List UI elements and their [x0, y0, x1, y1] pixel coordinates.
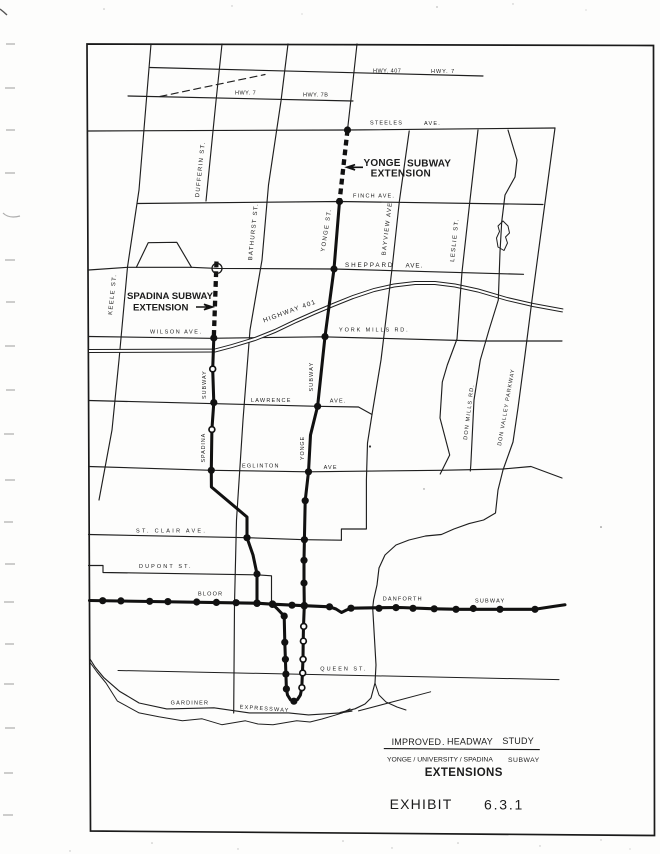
svg-text:.: . — [442, 737, 445, 747]
svg-text:SUBWAY: SUBWAY — [309, 362, 315, 392]
svg-text:EXTENSION: EXTENSION — [371, 169, 432, 180]
svg-text:YONGE: YONGE — [364, 158, 401, 169]
svg-text:HWY. 407: HWY. 407 — [373, 69, 401, 75]
svg-text:HEADWAY: HEADWAY — [447, 737, 493, 747]
svg-text:AVE: AVE — [324, 465, 338, 471]
svg-text:SPADINA SUBWAY: SPADINA SUBWAY — [127, 291, 214, 302]
svg-text:YONGE: YONGE — [300, 436, 306, 460]
svg-text:STUDY: STUDY — [502, 736, 534, 746]
svg-text:SPADINA: SPADINA — [201, 433, 207, 463]
svg-text:QUEEN ST.: QUEEN ST. — [320, 666, 367, 672]
svg-text:EGLINTON: EGLINTON — [242, 463, 280, 469]
svg-text:WILSON AVE.: WILSON AVE. — [150, 330, 203, 336]
svg-text:SUBWAY: SUBWAY — [202, 370, 208, 399]
svg-text:DUPONT ST.: DUPONT ST. — [139, 564, 193, 570]
svg-text:LAWRENCE: LAWRENCE — [251, 398, 292, 404]
svg-text:HWY. 7: HWY. 7 — [235, 90, 256, 96]
svg-text:YONGE / UNIVERSITY / SPADINA: YONGE / UNIVERSITY / SPADINA — [387, 756, 493, 763]
svg-text:IMPROVED: IMPROVED — [392, 737, 442, 747]
svg-text:AVE.: AVE. — [330, 398, 347, 404]
svg-text:AVE.: AVE. — [406, 263, 424, 270]
svg-text:HWY. 7B: HWY. 7B — [303, 92, 328, 98]
svg-text:SUBWAY: SUBWAY — [475, 599, 505, 605]
svg-text:AVE.: AVE. — [424, 121, 441, 127]
svg-text:6.3.1: 6.3.1 — [484, 796, 524, 812]
svg-text:DANFORTH: DANFORTH — [383, 596, 423, 602]
svg-text:SUBWAY: SUBWAY — [508, 757, 540, 764]
svg-text:STEELES: STEELES — [370, 121, 403, 127]
svg-text:GARDINER: GARDINER — [171, 700, 210, 706]
svg-text:SHEPPARD: SHEPPARD — [345, 262, 394, 269]
svg-text:ST. CLAIR AVE.: ST. CLAIR AVE. — [136, 529, 207, 535]
svg-text:BLOOR: BLOOR — [198, 591, 223, 597]
svg-text:YORK MILLS RD.: YORK MILLS RD. — [339, 328, 410, 334]
svg-text:EXTENSION: EXTENSION — [133, 303, 189, 314]
svg-text:EXHIBIT: EXHIBIT — [390, 796, 453, 812]
svg-text:EXTENSIONS: EXTENSIONS — [425, 767, 503, 779]
svg-text:FINCH AVE.: FINCH AVE. — [353, 194, 395, 200]
svg-text:HWY. 7: HWY. 7 — [431, 69, 455, 75]
